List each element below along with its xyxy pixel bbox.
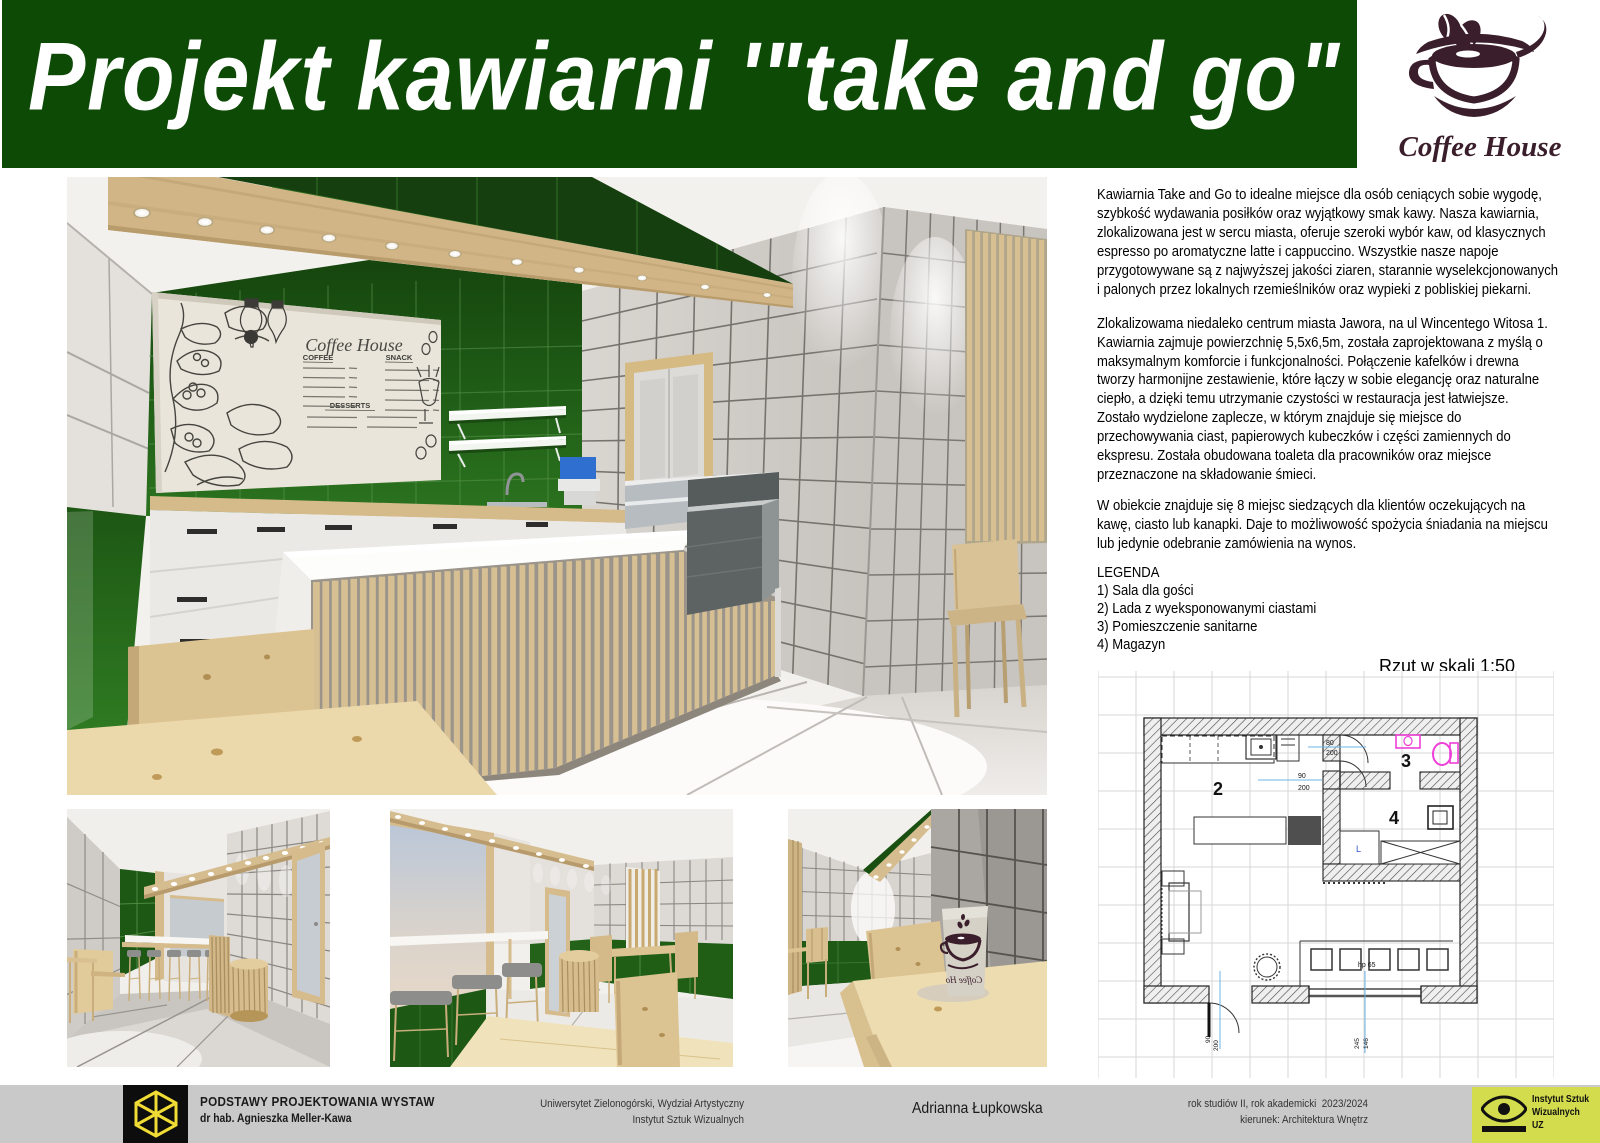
svg-text:80: 80 — [1326, 740, 1334, 747]
svg-text:L: L — [1356, 844, 1361, 854]
svg-text:245: 245 — [1354, 1038, 1361, 1049]
svg-text:4: 4 — [1389, 808, 1399, 828]
svg-text:hp 65: hp 65 — [1358, 962, 1376, 969]
svg-text:SNACK: SNACK — [386, 353, 413, 362]
svg-text:90: 90 — [1298, 773, 1306, 780]
svg-text:146: 146 — [1363, 1038, 1370, 1049]
svg-text:COFFEE: COFFEE — [303, 353, 333, 362]
svg-text:200: 200 — [1326, 750, 1338, 757]
svg-text:3: 3 — [1401, 751, 1411, 771]
svg-text:Coffee House: Coffee House — [1399, 131, 1562, 163]
svg-text:90: 90 — [1205, 1035, 1212, 1043]
svg-text:Coffee House: Coffee House — [305, 335, 402, 355]
svg-text:200: 200 — [1213, 1040, 1220, 1051]
svg-text:200: 200 — [1298, 785, 1310, 792]
svg-text:Coffee Ho: Coffee Ho — [945, 975, 982, 985]
svg-text:2: 2 — [1213, 779, 1223, 799]
